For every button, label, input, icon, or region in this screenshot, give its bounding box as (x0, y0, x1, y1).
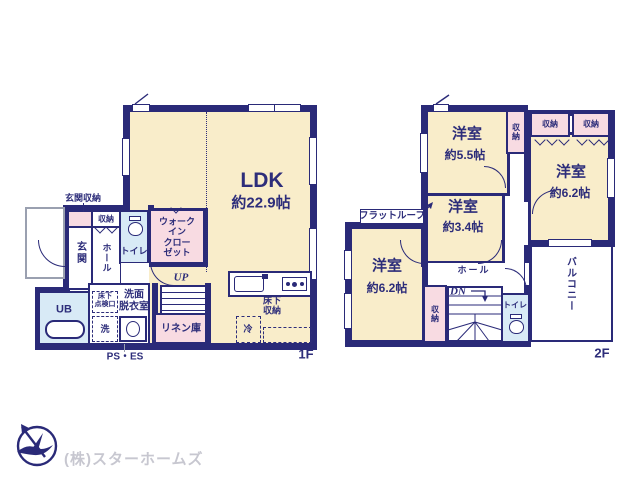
washroom-label: 洗面 脱衣室 (119, 290, 149, 313)
hatch-line: 床下 (95, 293, 116, 301)
sink-icon (234, 276, 264, 292)
faucet-icon (262, 274, 268, 279)
washroom-line: 洗面 (119, 290, 149, 302)
window (344, 250, 352, 280)
stove-icon (282, 277, 307, 291)
flat-roof-label: フラットルーフ (359, 212, 425, 223)
closet-label: 収納 (98, 214, 114, 223)
sliding-window-area (263, 327, 312, 343)
stairs-up (160, 285, 207, 315)
unit-bath-label: UB (56, 304, 72, 317)
balcony-label: バルコニー (563, 257, 578, 312)
room-6-2w-name: 洋室 (372, 257, 402, 274)
window (248, 104, 275, 112)
underfloor-hatch-label: 床下 点検口 (95, 293, 116, 309)
ufs-line: 収納 (263, 306, 281, 316)
window (607, 158, 615, 198)
toilet-icon (127, 216, 143, 236)
window (309, 137, 317, 185)
floorplan-canvas: LDK 約22.9帖 玄関収納 収納 玄関 ホール トイレ ウォーク イン クロ… (0, 0, 640, 480)
washroom-line: 脱衣室 (119, 301, 149, 313)
window (420, 133, 428, 173)
closet-stairs-label: 収納 (430, 305, 441, 323)
label-pointer-line (83, 203, 84, 212)
entrance-storage-label: 玄関収納 (65, 193, 101, 203)
fridge-label: 冷 (243, 324, 252, 334)
hatch-line: 点検口 (95, 301, 116, 309)
washer-label: 洗 (100, 324, 109, 334)
room-3-4-name: 洋室 (448, 198, 478, 215)
room-6-2e-size: 約6.2帖 (550, 187, 591, 201)
room-3-4-size: 約3.4帖 (443, 221, 484, 235)
room-6-2w-size: 約6.2帖 (367, 282, 408, 296)
room-6-2e-name: 洋室 (556, 163, 586, 180)
ufs-line: 床下 (263, 296, 281, 306)
toilet-label-2f: トイレ (503, 300, 527, 309)
closet-label-2f: 収納 (583, 119, 599, 128)
toilet-icon (508, 314, 524, 334)
stairs-up-label: UP (174, 272, 189, 285)
entrance-label: 玄関 (73, 241, 88, 265)
room-5-5-size: 約5.5帖 (445, 149, 486, 163)
ps-es-label: PS・ES (107, 351, 144, 363)
walk-in-closet-label: ウォーク イン クロー ゼット (159, 216, 195, 257)
ldk-name: LDK (240, 169, 283, 193)
window (274, 104, 301, 112)
floor1-label: 1F (298, 348, 313, 363)
area-divider-line (206, 112, 207, 272)
window (344, 293, 352, 329)
bathtub-icon (45, 320, 85, 339)
hall-ldk-opening (121, 263, 149, 284)
hall-label-2f: ホール (457, 265, 490, 275)
vent-icon (433, 93, 453, 106)
wic-line: クロー (159, 237, 195, 247)
closet-label-2f: 収納 (542, 119, 558, 128)
floor2-label: 2F (594, 347, 609, 362)
room-5-5-name: 洋室 (452, 125, 482, 142)
wic-line: イン (159, 227, 195, 237)
bird-compass-logo-icon (12, 420, 62, 470)
company-name: (株)スターホームズ (64, 448, 204, 469)
window (122, 138, 130, 176)
wic-line: ウォーク (159, 216, 195, 226)
toilet-label-1f: トイレ (120, 246, 147, 256)
window (548, 239, 592, 247)
washbasin-icon (119, 316, 147, 342)
hall-label-1f: ホール (101, 243, 114, 273)
wic-line: ゼット (159, 247, 195, 257)
underfloor-storage-label: 床下 収納 (263, 296, 281, 317)
linen-label: リネン庫 (161, 323, 201, 335)
ldk-size: 約22.9帖 (231, 194, 290, 211)
closet-strip-label: 収納 (511, 123, 522, 141)
stairs-down-label: DN (450, 286, 466, 299)
vent-icon (132, 92, 152, 106)
